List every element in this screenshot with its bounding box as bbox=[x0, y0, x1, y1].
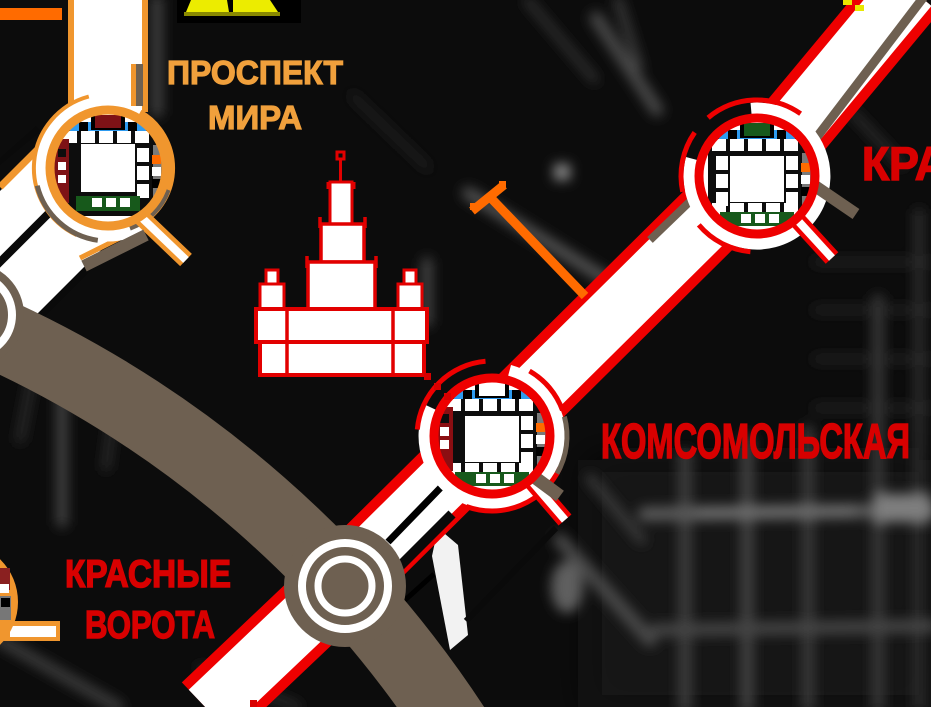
svg-text:КОМСОМОЛЬСКАЯ: КОМСОМОЛЬСКАЯ bbox=[601, 415, 910, 469]
svg-text:МИРА: МИРА bbox=[208, 100, 302, 137]
svg-text:КРАСНОСЕЛЬСКАЯ: КРАСНОСЕЛЬСКАЯ bbox=[862, 137, 931, 190]
svg-text:КРАСНЫЕ: КРАСНЫЕ bbox=[65, 553, 231, 596]
svg-text:ВОРОТА: ВОРОТА bbox=[85, 604, 215, 647]
svg-text:ПРОСПЕКТ: ПРОСПЕКТ bbox=[167, 55, 344, 92]
